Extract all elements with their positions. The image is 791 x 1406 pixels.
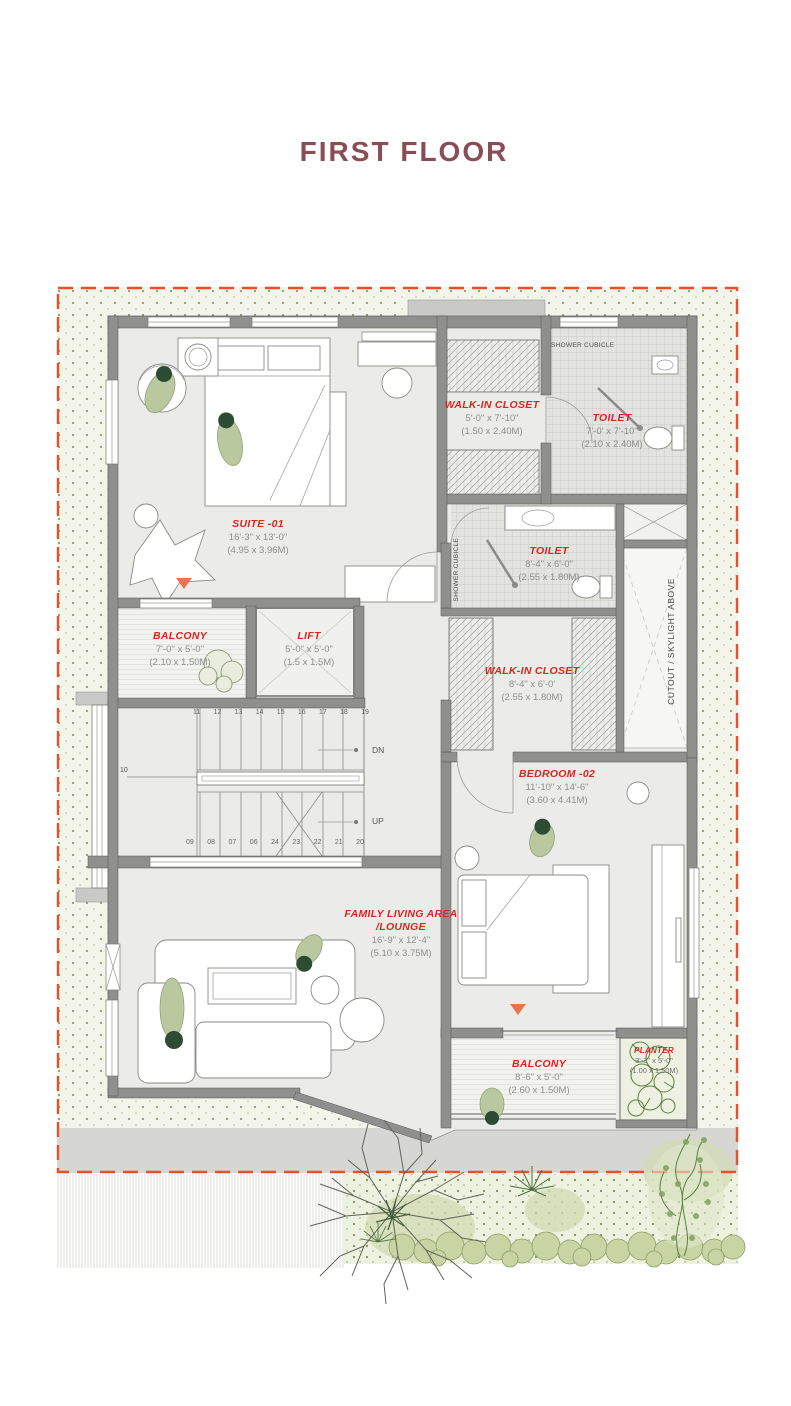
room-name-2: /LOUNGE (344, 921, 457, 934)
room-dim-m: (3.60 x 4.41M) (519, 794, 595, 807)
stair-step: 12 (214, 709, 222, 716)
room-dim-ft: 3'-3" x 5'-0" (630, 1056, 678, 1066)
room-name: TOILET (518, 545, 579, 558)
room-dim-ft: 11'-10" x 14'-6" (519, 781, 595, 794)
room-label-family-living: FAMILY LIVING AREA /LOUNGE 16'-9" x 12'-… (344, 908, 457, 960)
room-dim-ft: 5'-0" x 5'-0" (284, 643, 335, 656)
room-dim-m: (2.10 x 2.40M) (581, 438, 642, 451)
room-name: PLANTER (630, 1046, 678, 1056)
stair-step: 08 (207, 839, 215, 846)
cutout-skylight-label: CUTOUT / SKYLIGHT ABOVE (666, 578, 676, 705)
room-label-walkin-top: WALK-IN CLOSET 5'-0" x 7'-10" (1.50 x 2.… (445, 399, 540, 438)
stair-step: 06 (250, 839, 258, 846)
room-dim-ft: 7'-0' x 7'-10" (581, 425, 642, 438)
stair-step-10: 10 (120, 767, 128, 774)
room-dim-ft: 8'-6" x 5'-0" (508, 1071, 569, 1084)
stair-numbers-bottom: 09 08 07 06 24 23 22 21 20 (186, 839, 364, 846)
stairs-dn-label: DN (372, 745, 384, 755)
room-dim-ft: 16'-9" x 12'-4" (344, 934, 457, 947)
room-name: SUITE -01 (227, 518, 288, 531)
room-label-lift: LIFT 5'-0" x 5'-0" (1.5 x 1.5M) (284, 630, 335, 669)
room-label-suite01: SUITE -01 16'-3" x 13'-0" (4.95 x 3.96M) (227, 518, 288, 557)
room-label-balcony-lower: BALCONY 8'-6" x 5'-0" (2.60 x 1.50M) (508, 1058, 569, 1097)
room-name: WALK-IN CLOSET (445, 399, 540, 412)
room-dim-m: (2.55 x 1.80M) (518, 571, 579, 584)
room-name: TOILET (581, 412, 642, 425)
stair-step: 23 (292, 839, 300, 846)
stairs-up-label: UP (372, 816, 384, 826)
shower-cubicle-label-mid: SHOWER CUBICLE (453, 538, 460, 601)
room-name: WALK-IN CLOSET (485, 665, 580, 678)
room-dim-ft: 5'-0" x 7'-10" (445, 412, 540, 425)
shower-cubicle-label-top: SHOWER CUBICLE (551, 342, 614, 349)
stair-step: 07 (229, 839, 237, 846)
room-dim-ft: 16'-3" x 13'-0" (227, 531, 288, 544)
room-dim-ft: 8'-4" x 6'-0" (518, 558, 579, 571)
stair-step: 09 (186, 839, 194, 846)
room-label-bedroom02: BEDROOM -02 11'-10" x 14'-6" (3.60 x 4.4… (519, 768, 595, 807)
room-label-walkin-mid: WALK-IN CLOSET 8'-4" x 6'-0' (2.55 x 1.8… (485, 665, 580, 704)
floor-plan-page: FIRST FLOOR SUITE -01 16'-3" x 13'-0" (4… (0, 0, 791, 1406)
stair-step: 24 (271, 839, 279, 846)
stair-step: 22 (314, 839, 322, 846)
room-label-balcony-upper: BALCONY 7'-0'' x 5'-0'' (2.10 x 1.50M) (149, 630, 210, 669)
stair-step: 18 (340, 709, 348, 716)
stair-step: 20 (356, 839, 364, 846)
room-name: BALCONY (149, 630, 210, 643)
room-dim-m: (1.00 x 1.50M) (630, 1066, 678, 1076)
room-dim-m: (5.10 x 3.75M) (344, 947, 457, 960)
stair-step: 14 (256, 709, 264, 716)
driveway-hatch (57, 1174, 344, 1268)
stair-step: 11 (193, 709, 200, 716)
room-dim-m: (4.95 x 3.96M) (227, 544, 288, 557)
stair-step: 15 (277, 709, 285, 716)
stair-step: 16 (298, 709, 306, 716)
room-name: BEDROOM -02 (519, 768, 595, 781)
page-title: FIRST FLOOR (300, 136, 509, 168)
stair-step: 19 (361, 709, 369, 716)
room-dim-ft: 8'-4" x 6'-0' (485, 678, 580, 691)
room-name: LIFT (284, 630, 335, 643)
room-dim-m: (2.60 x 1.50M) (508, 1084, 569, 1097)
room-dim-m: (1.50 x 2.40M) (445, 425, 540, 438)
room-label-planter: PLANTER 3'-3" x 5'-0" (1.00 x 1.50M) (630, 1046, 678, 1076)
room-dim-m: (2.55 x 1.80M) (485, 691, 580, 704)
room-label-toilet-mid: TOILET 8'-4" x 6'-0" (2.55 x 1.80M) (518, 545, 579, 584)
room-dim-ft: 7'-0'' x 5'-0'' (149, 643, 210, 656)
toilet-top-floor (547, 328, 687, 494)
room-name: BALCONY (508, 1058, 569, 1071)
room-dim-m: (1.5 x 1.5M) (284, 656, 335, 669)
stair-numbers-top: 11 12 13 14 15 16 17 18 19 (193, 709, 369, 716)
room-name: FAMILY LIVING AREA (344, 908, 457, 921)
stair-step: 13 (235, 709, 243, 716)
stair-step: 21 (335, 839, 343, 846)
room-label-toilet-top: TOILET 7'-0' x 7'-10" (2.10 x 2.40M) (581, 412, 642, 451)
stair-step: 17 (319, 709, 327, 716)
room-dim-m: (2.10 x 1.50M) (149, 656, 210, 669)
